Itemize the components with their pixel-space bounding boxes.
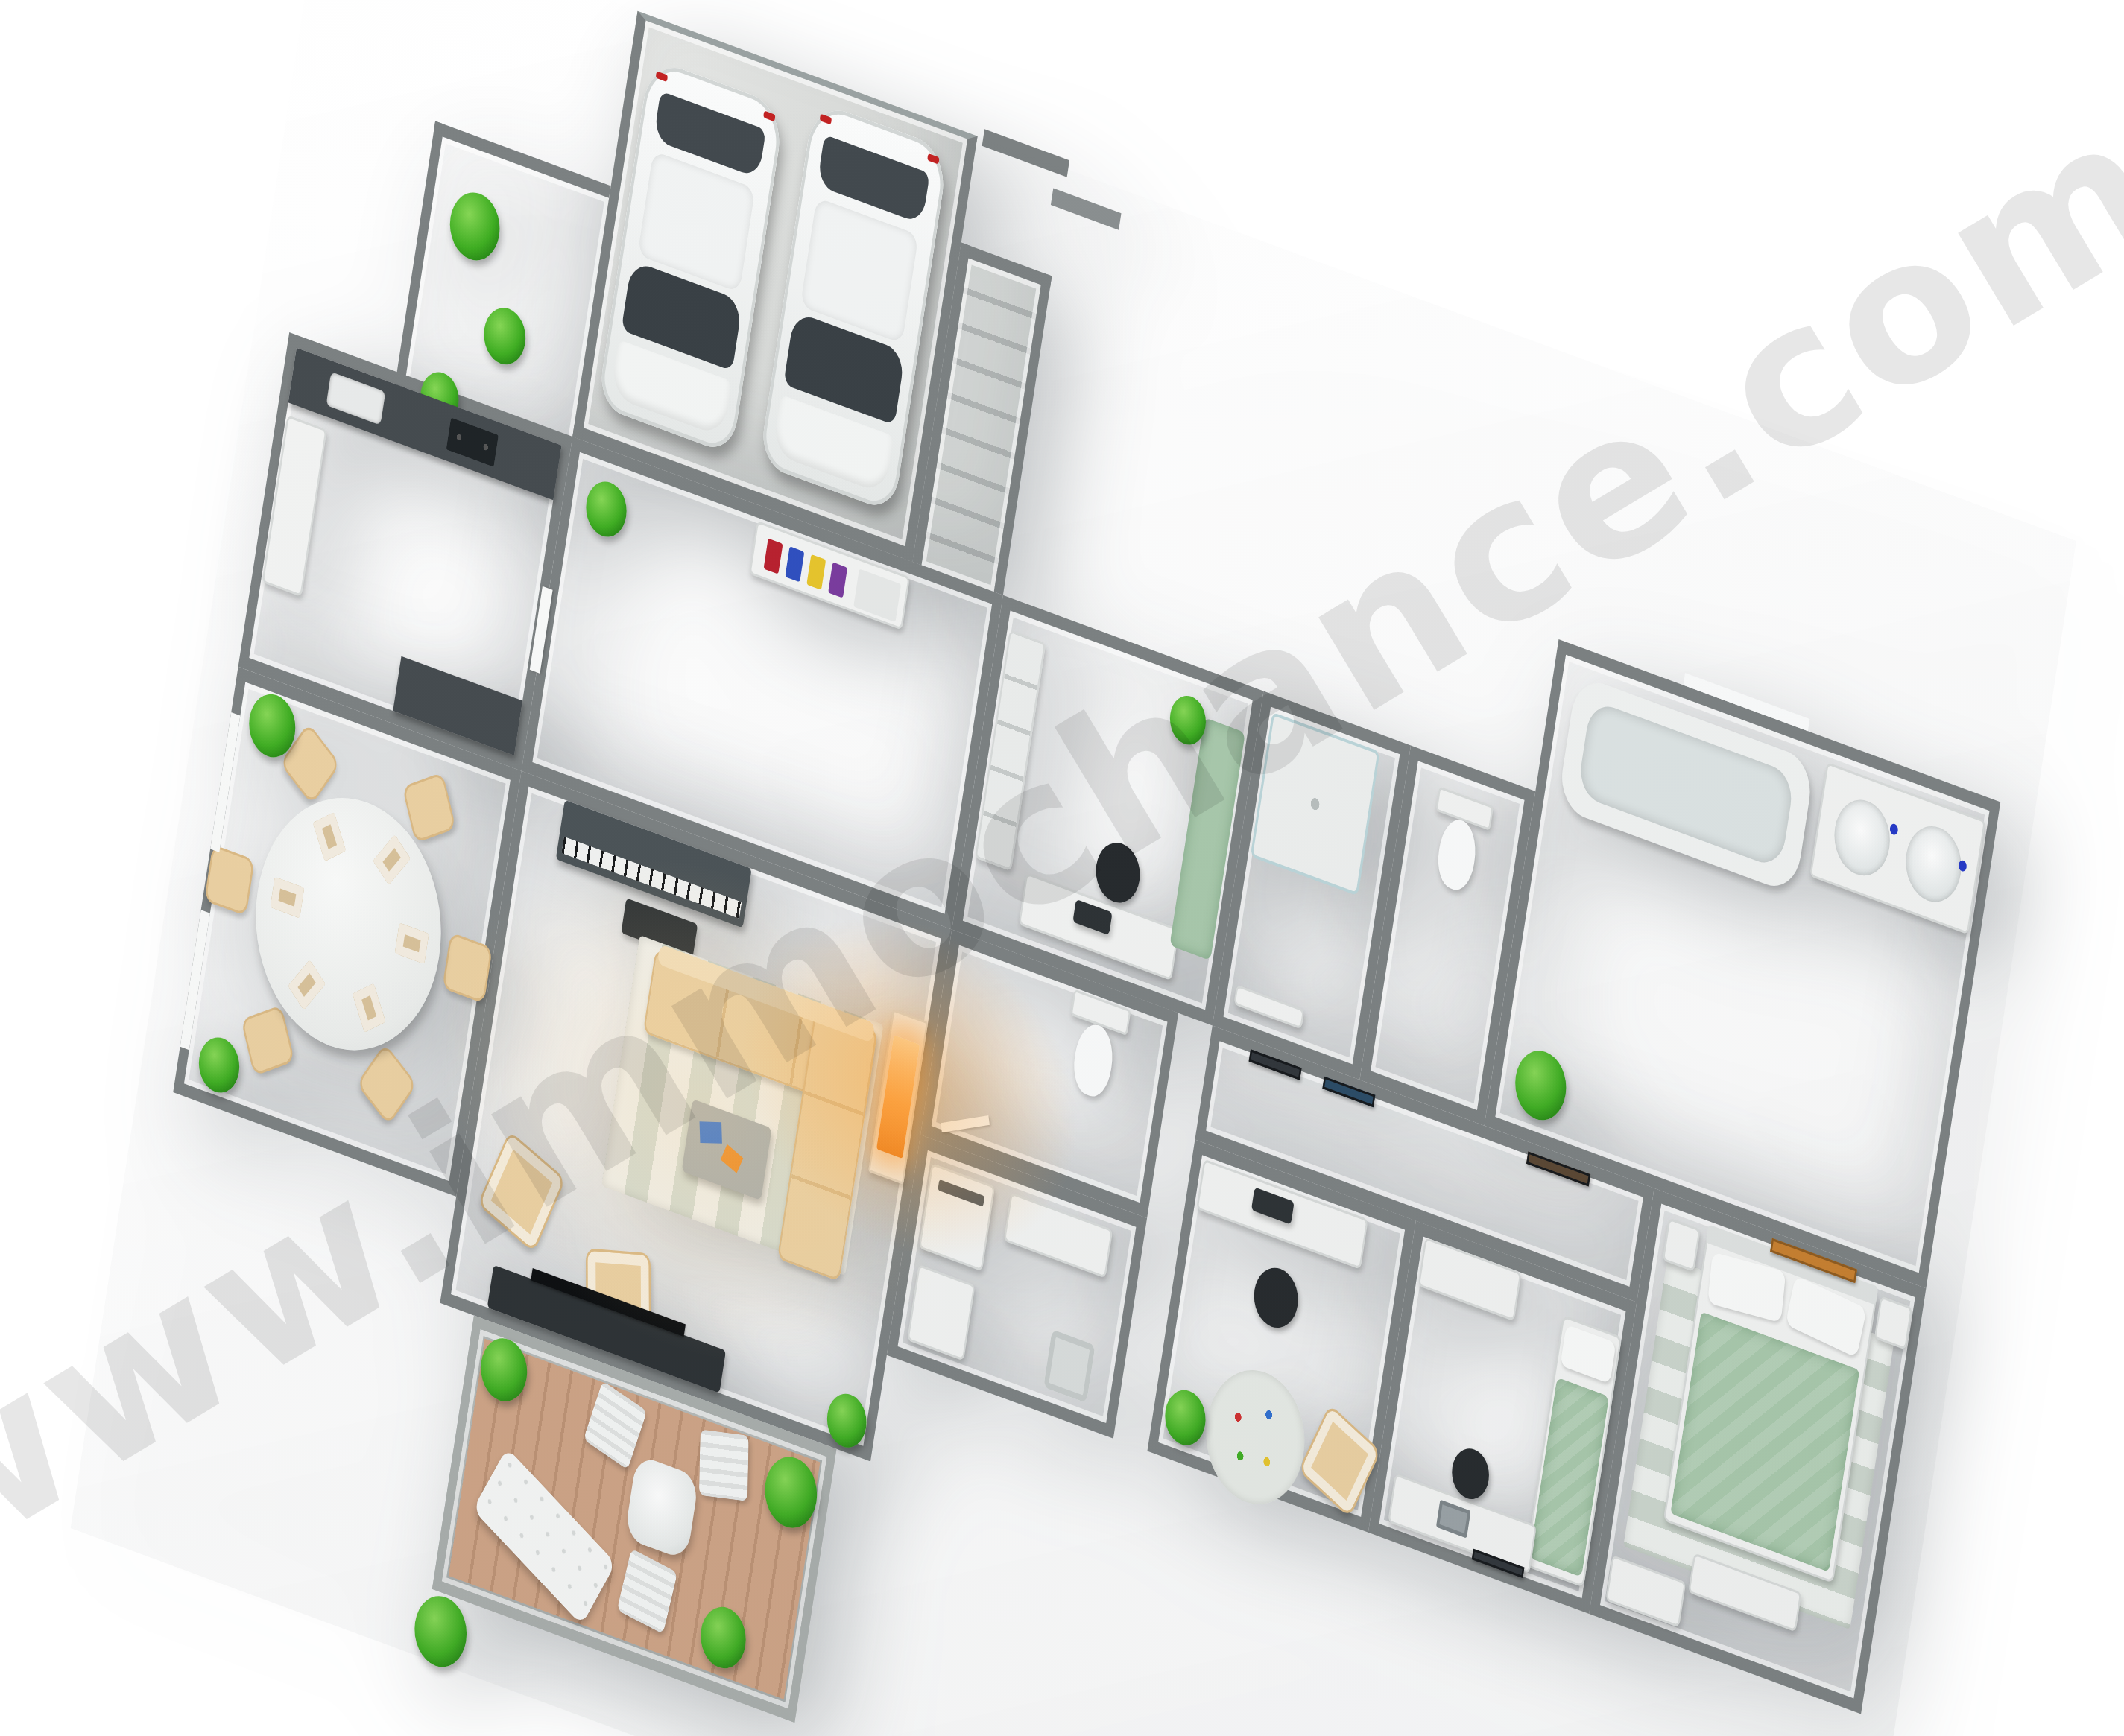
clothes-purple bbox=[828, 563, 847, 598]
shoe-shelf bbox=[853, 568, 901, 622]
car-taillight bbox=[820, 114, 832, 125]
magazine-blue bbox=[700, 1121, 722, 1143]
plan-projection-wrapper bbox=[0, 0, 2124, 1736]
floor-plan-render: www.immochance.com bbox=[0, 0, 2124, 1736]
plant bbox=[410, 1588, 471, 1675]
clothes-yellow bbox=[806, 554, 826, 590]
clothes-red bbox=[764, 539, 783, 574]
car-taillight bbox=[656, 71, 669, 82]
driveway-step-wall bbox=[1051, 189, 1122, 230]
house-floor-plan bbox=[71, 0, 2076, 1736]
driveway-step-wall bbox=[982, 129, 1069, 177]
clothes-blue bbox=[785, 546, 804, 582]
washer-door-slot bbox=[938, 1179, 984, 1207]
terrace-chair bbox=[699, 1429, 749, 1501]
